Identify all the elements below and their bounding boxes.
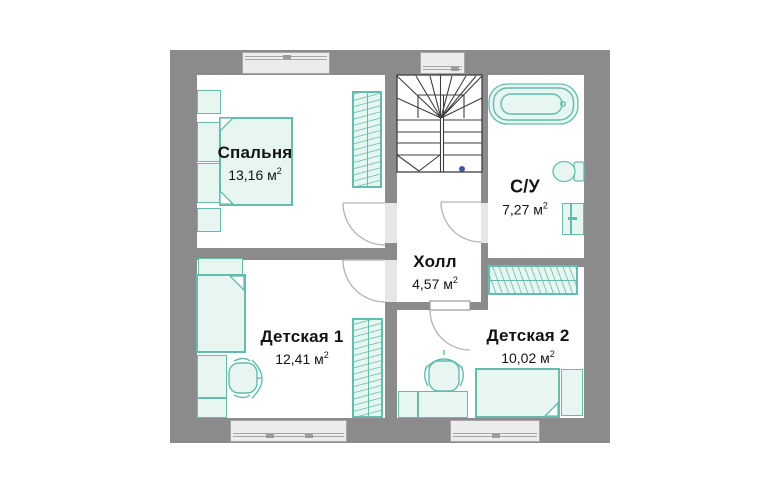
wall-bedroom-hall xyxy=(385,75,397,203)
wardrobe-kids2 xyxy=(488,265,578,295)
wall-hall-bottom-right xyxy=(470,302,481,310)
window-handle xyxy=(492,434,500,438)
floor-plan: Спальня 13,16 м2 С/У 7,27 м2 Холл 4,57 м… xyxy=(0,0,766,502)
room-name: Детская 1 xyxy=(261,327,344,347)
desk-divider xyxy=(417,392,419,417)
toilet xyxy=(553,162,584,182)
room-name: С/У xyxy=(502,177,548,198)
wardrobe-bedroom xyxy=(352,91,382,188)
wall-stub-center xyxy=(385,243,397,260)
room-area: 12,41 м2 xyxy=(261,350,344,367)
room-label-kids1: Детская 1 12,41 м2 xyxy=(261,327,344,367)
wall-kids1-kids2 xyxy=(385,302,397,418)
window-handle xyxy=(283,55,291,59)
desk-divider xyxy=(198,397,226,399)
wardrobe-rail xyxy=(367,93,368,186)
door-bedroom xyxy=(343,203,385,245)
window-bedroom-top xyxy=(242,52,330,74)
bed-pillow xyxy=(198,258,243,275)
bed-pillow xyxy=(561,369,583,416)
desk-chair-kids1 xyxy=(229,359,262,399)
door-kids1 xyxy=(343,260,385,302)
door-kids2 xyxy=(430,301,470,350)
window-pane-line xyxy=(233,433,344,434)
room-label-bathroom: С/У 7,27 м2 xyxy=(502,177,548,218)
bathtub xyxy=(489,84,578,124)
window-kids1-bottom xyxy=(230,420,347,442)
wall-outer-right xyxy=(584,50,610,443)
room-area: 13,16 м2 xyxy=(218,166,293,183)
window-handle xyxy=(305,434,313,438)
room-label-bedroom: Спальня 13,16 м2 xyxy=(218,143,293,183)
room-label-kids2: Детская 2 10,02 м2 xyxy=(487,326,570,366)
cabinet-handle xyxy=(568,217,577,220)
wall-hall-right xyxy=(481,243,488,310)
wall-outer-left xyxy=(170,50,197,443)
window-pane-line xyxy=(245,59,327,60)
nightstand xyxy=(197,208,221,232)
desk-chair-kids2 xyxy=(425,350,464,391)
room-name: Холл xyxy=(412,252,458,272)
window-pane-line xyxy=(233,436,344,437)
sink-cabinet xyxy=(562,203,584,235)
nightstand xyxy=(197,90,221,114)
doorway-bedroom xyxy=(385,203,397,243)
single-bed-kids2 xyxy=(475,368,560,418)
single-bed-kids1 xyxy=(196,274,246,353)
desk-kids1 xyxy=(197,355,227,418)
room-area: 4,57 м2 xyxy=(412,275,458,292)
wardrobe-rail xyxy=(368,320,369,416)
desk-kids2 xyxy=(398,391,468,418)
staircase xyxy=(397,75,482,172)
bathtub-drain xyxy=(561,102,566,107)
wardrobe-kids1 xyxy=(352,318,383,418)
window-stair-top xyxy=(420,52,465,74)
room-name: Спальня xyxy=(218,143,293,163)
doorway-kids1 xyxy=(385,260,397,302)
room-label-hall: Холл 4,57 м2 xyxy=(412,252,458,292)
wall-stair-bathroom xyxy=(481,75,488,203)
room-area: 7,27 м2 xyxy=(502,201,548,218)
room-name: Детская 2 xyxy=(487,326,570,346)
door-bathroom xyxy=(441,202,481,242)
window-handle xyxy=(451,67,459,71)
room-area: 10,02 м2 xyxy=(487,349,570,366)
stair-newel-dot xyxy=(459,166,465,172)
window-kids2-bottom xyxy=(450,420,540,442)
doorway-bathroom xyxy=(481,203,488,243)
wall-hall-bottom-left xyxy=(397,302,430,310)
window-handle xyxy=(266,434,274,438)
wardrobe-rail xyxy=(490,280,576,281)
wall-outer-top xyxy=(170,50,610,75)
